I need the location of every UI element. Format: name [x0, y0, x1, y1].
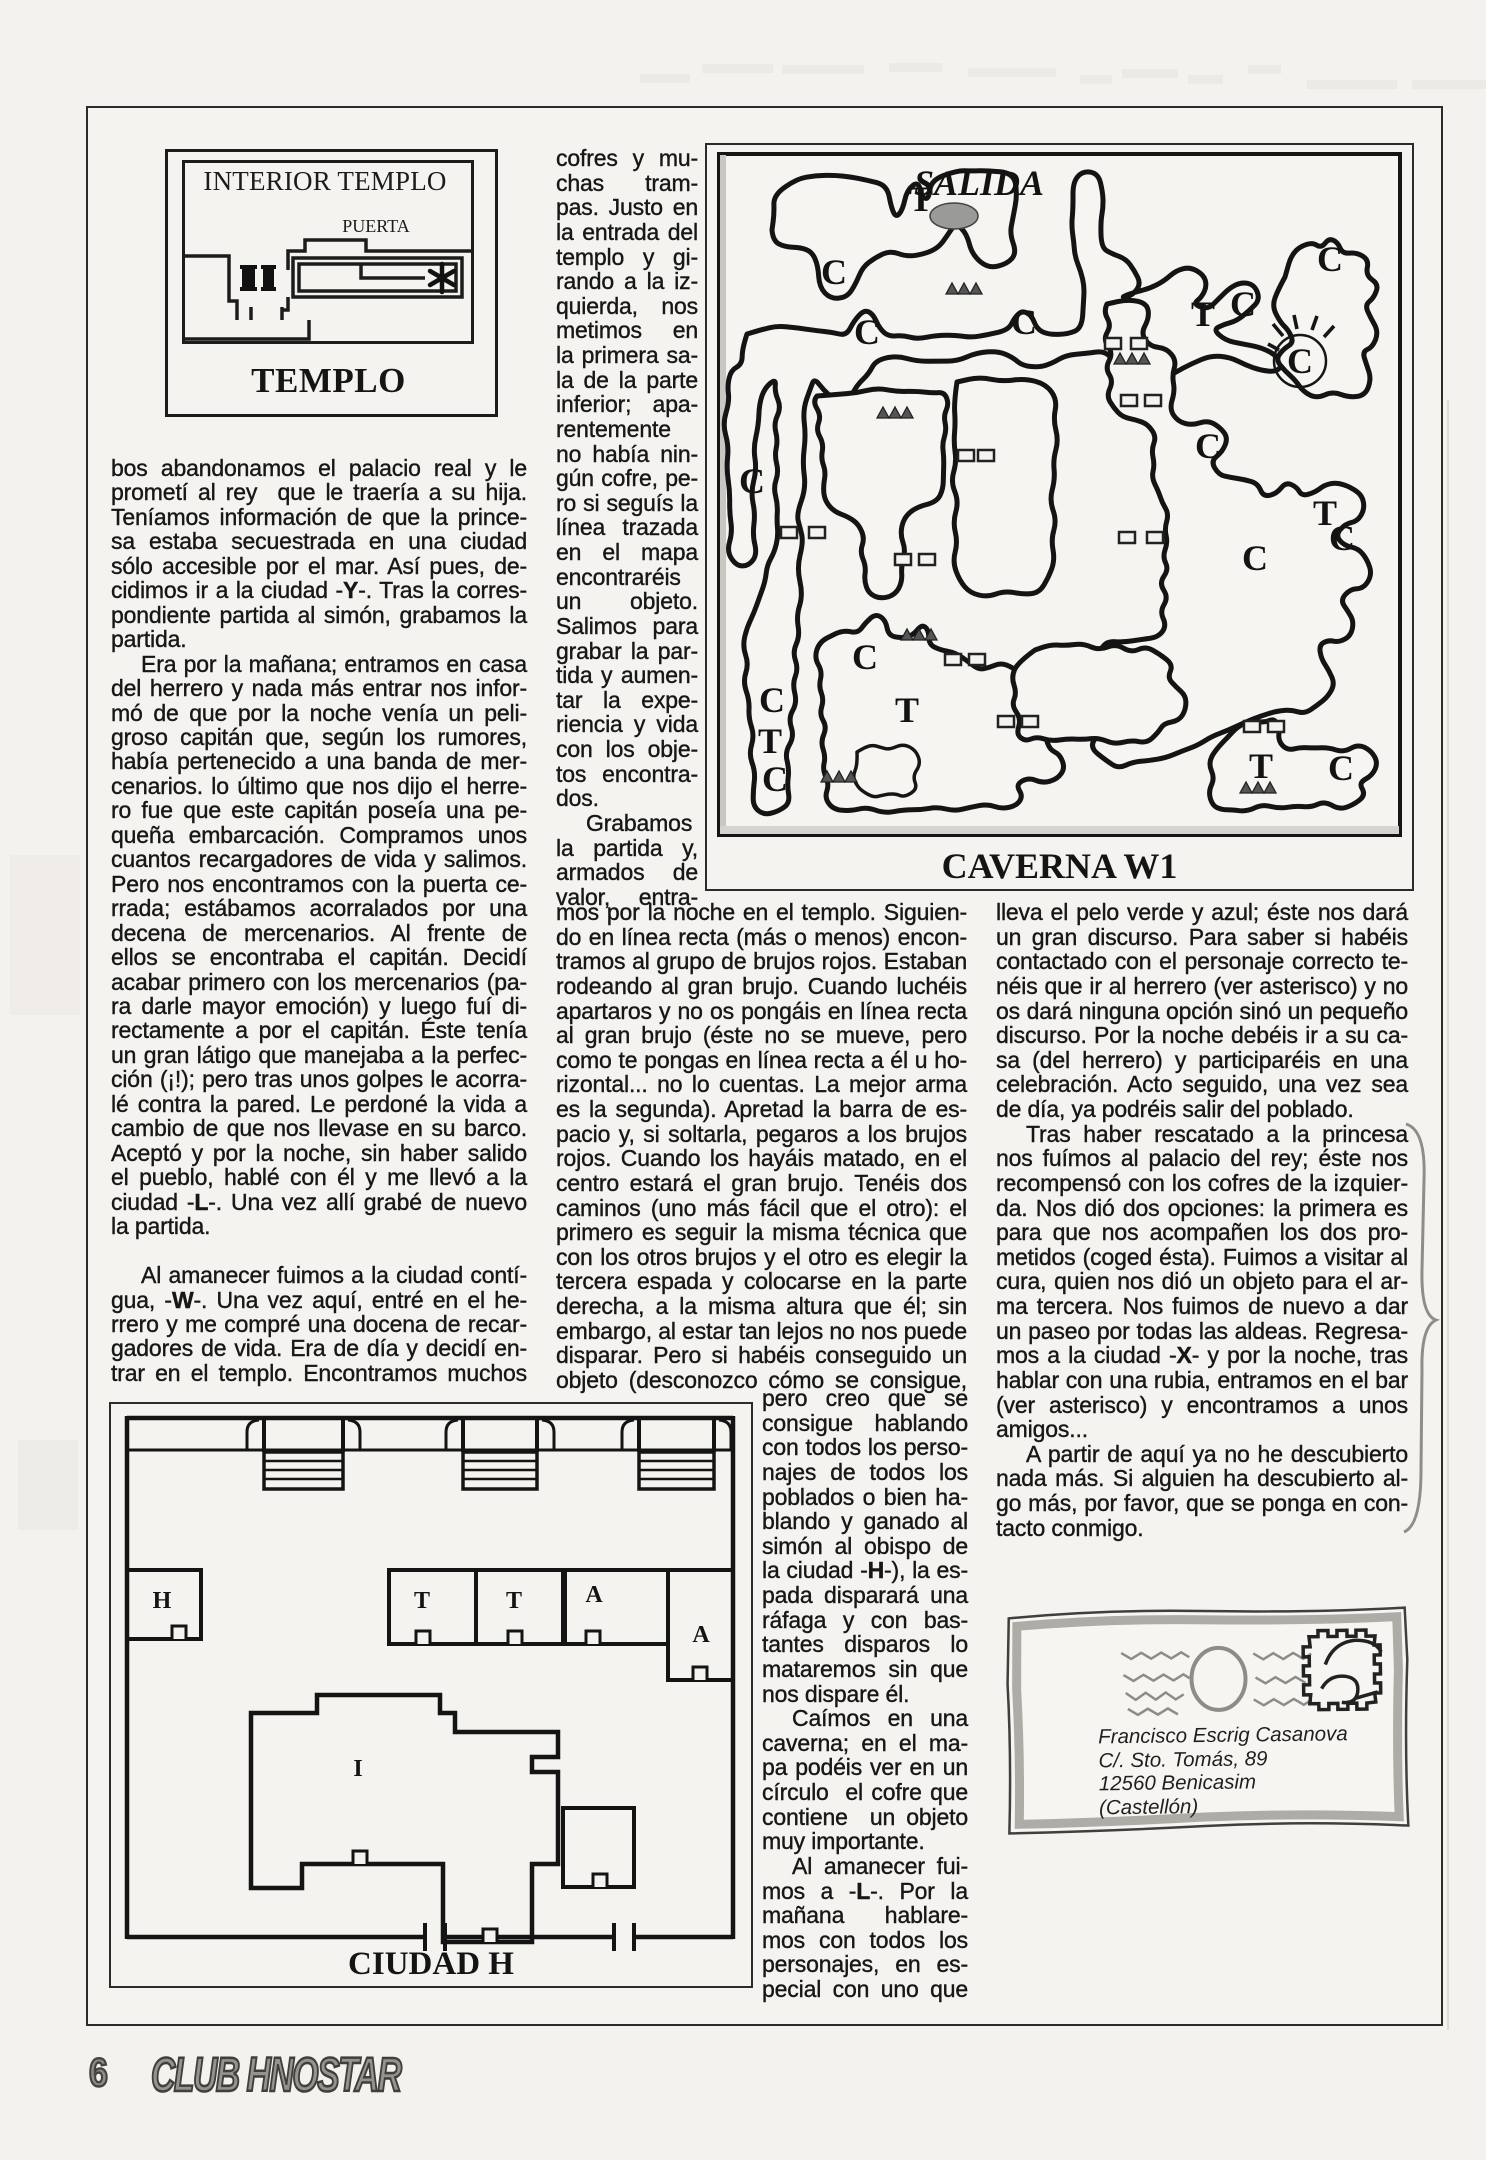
svg-text:C: C: [759, 680, 785, 720]
svg-text:C: C: [1329, 518, 1355, 558]
svg-text:C: C: [1195, 426, 1221, 466]
svg-text:C: C: [1287, 341, 1313, 381]
svg-text:T: T: [909, 179, 933, 219]
svg-text:A: A: [692, 1622, 710, 1648]
svg-text:C: C: [762, 759, 788, 799]
svg-text:C: C: [1230, 284, 1256, 324]
svg-text:H: H: [153, 1588, 172, 1614]
svg-text:I: I: [353, 1756, 362, 1782]
svg-text:C: C: [1328, 748, 1354, 788]
svg-text:C: C: [821, 252, 847, 292]
svg-text:T: T: [1249, 746, 1273, 786]
svg-text:C: C: [854, 312, 880, 352]
svg-text:T: T: [895, 690, 919, 730]
svg-text:T: T: [506, 1588, 522, 1614]
svg-text:C: C: [1242, 538, 1268, 578]
svg-text:C: C: [739, 461, 765, 501]
svg-text:C: C: [1317, 239, 1343, 279]
svg-text:C: C: [852, 637, 878, 677]
svg-text:SALIDA: SALIDA: [914, 163, 1044, 203]
svg-text:A: A: [585, 1582, 603, 1608]
svg-text:T: T: [758, 721, 782, 761]
svg-text:C: C: [1011, 302, 1037, 342]
svg-text:T: T: [1191, 294, 1215, 334]
svg-text:T: T: [414, 1588, 430, 1614]
